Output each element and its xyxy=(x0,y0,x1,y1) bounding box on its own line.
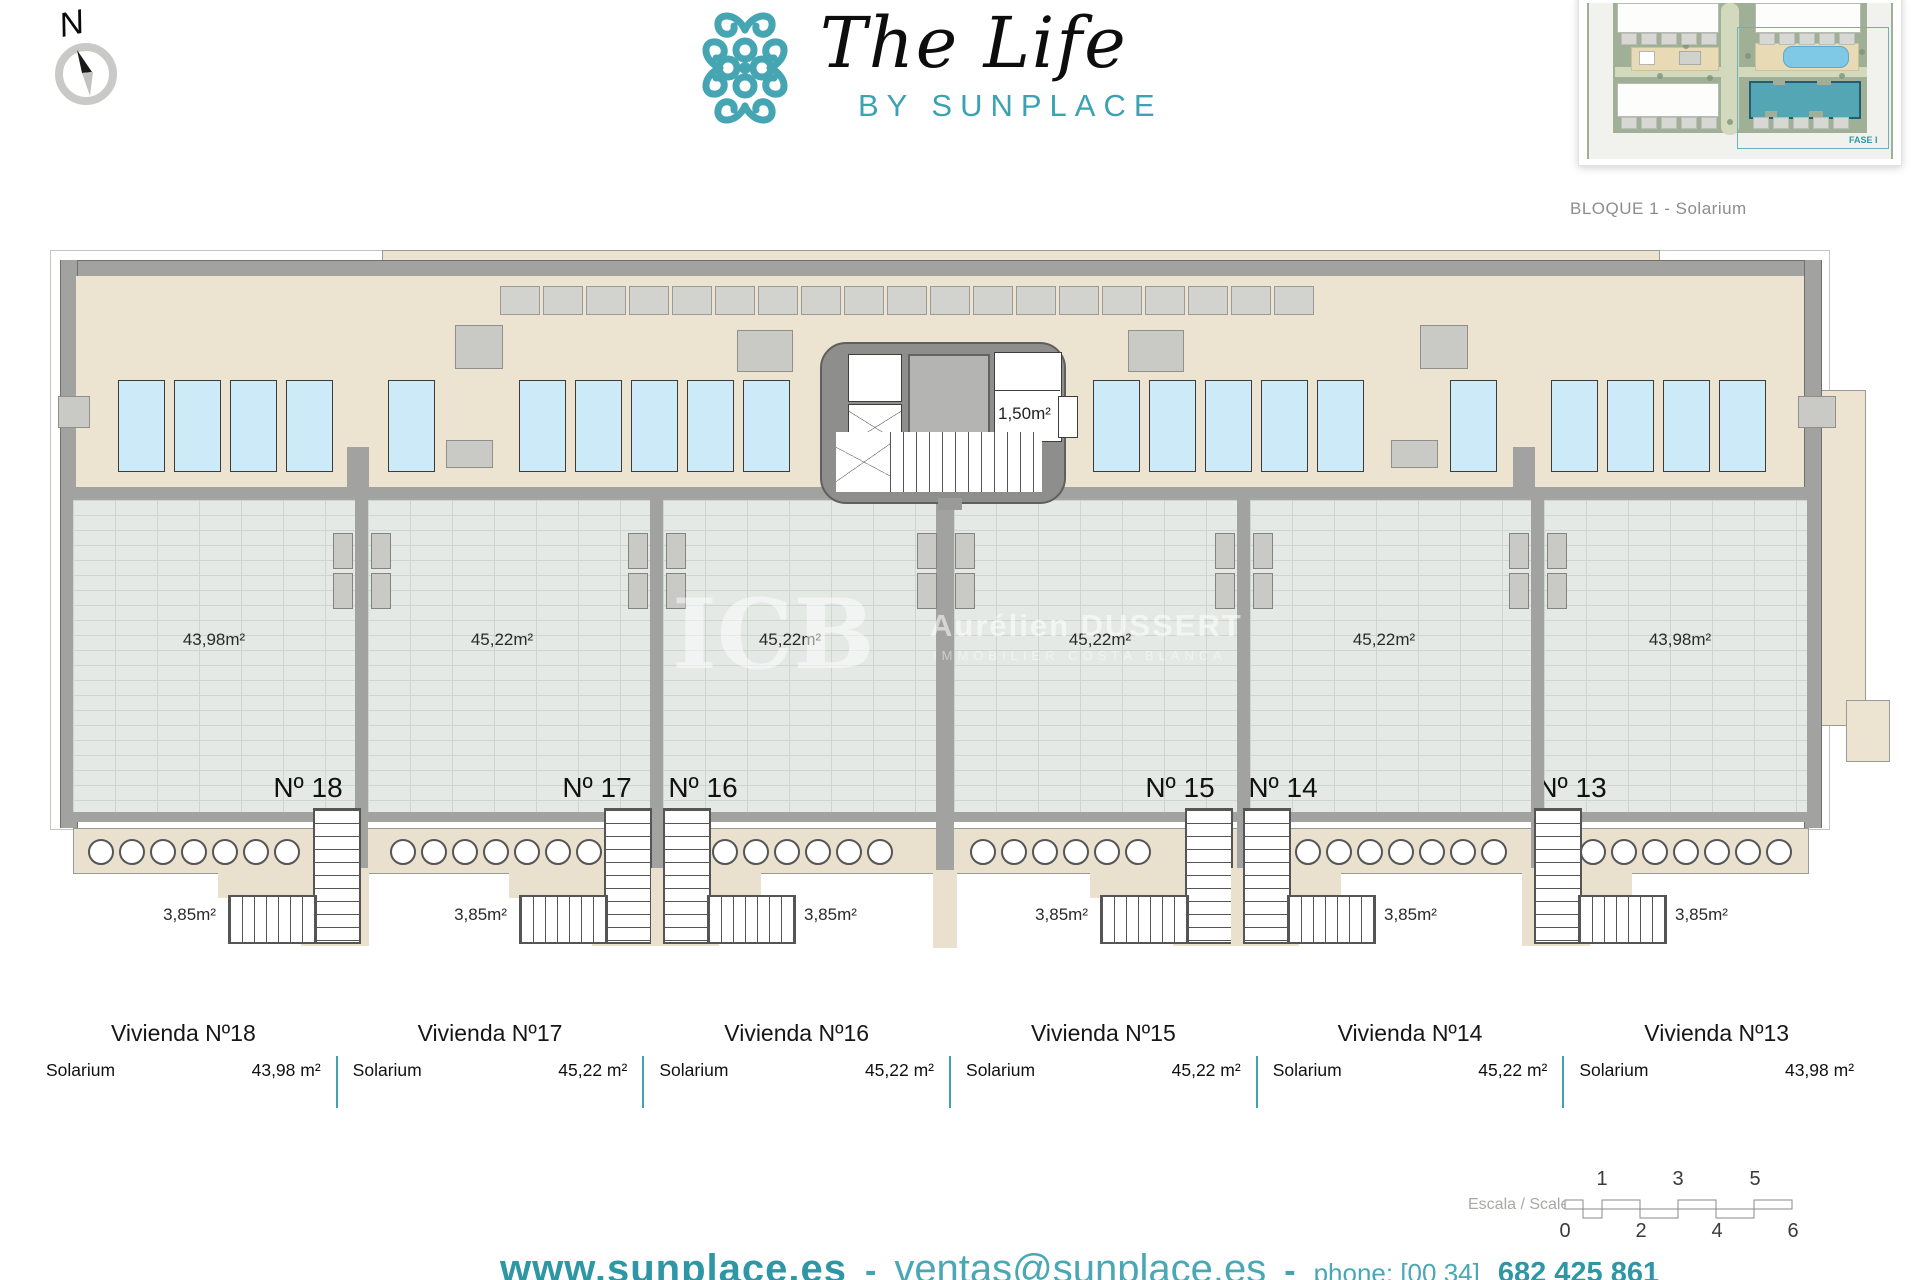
planter-box xyxy=(666,533,686,569)
stair-area-label: 3,85m² xyxy=(136,905,216,925)
stair-shaft xyxy=(1243,808,1291,944)
roof-equipment-box xyxy=(737,330,793,372)
table-title: Vivienda Nº17 xyxy=(353,1020,628,1047)
planter-circle xyxy=(1481,839,1507,865)
stair-core: 1,50m² xyxy=(820,342,1066,504)
stair-shaft xyxy=(663,808,711,944)
terrace-pier xyxy=(1513,447,1535,498)
footer-separator: - xyxy=(865,1252,876,1280)
planter-circle xyxy=(712,839,738,865)
table-column-vivienda-15: Vivienda Nº15Solarium45,22 m² xyxy=(950,1020,1257,1106)
table-row: Solarium45,22 m² xyxy=(1273,1060,1548,1081)
planter-circle xyxy=(1766,839,1792,865)
planter-circle xyxy=(421,839,447,865)
wall-tab xyxy=(58,396,90,428)
planter-box xyxy=(1215,573,1235,609)
roof-vent xyxy=(844,286,884,315)
table-row: Solarium45,22 m² xyxy=(659,1060,934,1081)
planter-circle xyxy=(452,839,478,865)
solar-panel xyxy=(286,380,333,472)
footer-contact: www.sunplace.es - ventas@sunplace.es - p… xyxy=(500,1247,1659,1280)
table-row-value: 45,22 m² xyxy=(558,1060,627,1081)
table-column-vivienda-16: Vivienda Nº16Solarium45,22 m² xyxy=(643,1020,950,1106)
core-door xyxy=(1058,396,1078,438)
planter-circle xyxy=(1419,839,1445,865)
roof-vent xyxy=(1231,286,1271,315)
table-title: Vivienda Nº13 xyxy=(1579,1020,1854,1047)
stair-run xyxy=(1287,895,1376,944)
planter-circle xyxy=(576,839,602,865)
planter-circle xyxy=(1032,839,1058,865)
unit-number-label: Nº 16 xyxy=(655,772,751,804)
roof-annex-right-low xyxy=(1846,700,1890,762)
stair-run xyxy=(519,895,608,944)
footer-email[interactable]: ventas@sunplace.es xyxy=(894,1247,1266,1280)
planter-circle xyxy=(181,839,207,865)
planter-box xyxy=(1547,573,1567,609)
planter-circle xyxy=(483,839,509,865)
solar-panel xyxy=(1551,380,1598,472)
planter-circle xyxy=(1063,839,1089,865)
solar-panel xyxy=(687,380,734,472)
stair-run xyxy=(707,895,796,944)
table-column-vivienda-18: Vivienda Nº18Solarium43,98 m² xyxy=(30,1020,337,1106)
unit-room xyxy=(368,500,650,812)
roof-vent xyxy=(1102,286,1142,315)
planter-circle xyxy=(1326,839,1352,865)
planter-box xyxy=(333,573,353,609)
unit-summary-table: Vivienda Nº18Solarium43,98 m²Vivienda Nº… xyxy=(30,1020,1870,1106)
planter-circle xyxy=(1357,839,1383,865)
scale-bar xyxy=(1564,1192,1796,1222)
central-pier xyxy=(933,870,957,948)
roof-vent xyxy=(586,286,626,315)
table-row-label: Solarium xyxy=(46,1060,115,1081)
unit-room xyxy=(1250,500,1531,812)
roof-equipment-box xyxy=(455,325,503,369)
unit-number-label: Nº 17 xyxy=(549,772,645,804)
table-row: Solarium45,22 m² xyxy=(966,1060,1241,1081)
planter-circle xyxy=(150,839,176,865)
table-row-value: 43,98 m² xyxy=(252,1060,321,1081)
roof-vent xyxy=(715,286,755,315)
unit-divider-central xyxy=(936,497,954,870)
planter-circle xyxy=(1611,839,1637,865)
table-row-value: 45,22 m² xyxy=(865,1060,934,1081)
planter-circle xyxy=(1580,839,1606,865)
table-title: Vivienda Nº16 xyxy=(659,1020,934,1047)
unit-area-label: 45,22m² xyxy=(745,630,835,650)
solar-panel xyxy=(631,380,678,472)
roof-vent xyxy=(500,286,540,315)
planter-circle xyxy=(1295,839,1321,865)
planter-circle xyxy=(1704,839,1730,865)
scale-label: Escala / Scale xyxy=(1468,1196,1569,1214)
roof-equipment-box xyxy=(1391,440,1438,468)
stair-shaft xyxy=(604,808,652,944)
core-connector xyxy=(938,498,962,510)
stair-run xyxy=(1100,895,1189,944)
unit-number-label: Nº 18 xyxy=(260,772,356,804)
stair-shaft xyxy=(1185,808,1233,944)
scale-tick: 2 xyxy=(1635,1220,1646,1243)
footer-website[interactable]: www.sunplace.es xyxy=(500,1247,847,1280)
scale-tick: 6 xyxy=(1787,1220,1798,1243)
planter-circle xyxy=(243,839,269,865)
planter-circle xyxy=(1388,839,1414,865)
solar-panel xyxy=(1149,380,1196,472)
roof-vent xyxy=(1059,286,1099,315)
solar-panel xyxy=(1719,380,1766,472)
planter-box xyxy=(1215,533,1235,569)
planter-circle xyxy=(1450,839,1476,865)
elevator-shaft xyxy=(908,354,990,434)
core-room-small xyxy=(848,354,902,402)
table-row: Solarium43,98 m² xyxy=(1579,1060,1854,1081)
solar-panel xyxy=(118,380,165,472)
core-room-divider xyxy=(994,390,1060,391)
unit-room xyxy=(73,500,355,812)
unit-area-label: 45,22m² xyxy=(1339,630,1429,650)
unit-area-label: 43,98m² xyxy=(169,630,259,650)
planter-box xyxy=(628,573,648,609)
planter-circle xyxy=(1125,839,1151,865)
planter-circle xyxy=(970,839,996,865)
unit-area-label: 45,22m² xyxy=(457,630,547,650)
solar-panel xyxy=(1450,380,1497,472)
roof-vent xyxy=(1274,286,1314,315)
planter-box xyxy=(1509,533,1529,569)
planter-box xyxy=(371,573,391,609)
core-room-right xyxy=(994,352,1062,442)
floorplan-sheet: N The Life BY SUNPLACE xyxy=(0,0,1920,1280)
solar-panel xyxy=(174,380,221,472)
planter-box xyxy=(955,533,975,569)
scale-tick: 4 xyxy=(1711,1220,1722,1243)
planter-circle xyxy=(119,839,145,865)
stair-area-label: 3,85m² xyxy=(427,905,507,925)
table-row-label: Solarium xyxy=(966,1060,1035,1081)
planter-box xyxy=(628,533,648,569)
planter-circle xyxy=(743,839,769,865)
roof-vent xyxy=(973,286,1013,315)
planter-circle xyxy=(805,839,831,865)
table-row: Solarium45,22 m² xyxy=(353,1060,628,1081)
planter-box xyxy=(371,533,391,569)
solar-panel xyxy=(388,380,435,472)
unit-room xyxy=(663,500,936,812)
unit-room xyxy=(1544,500,1807,812)
planter-box xyxy=(1253,573,1273,609)
roof-annex-right xyxy=(1820,390,1866,726)
roof-equipment-box xyxy=(1420,325,1468,369)
planter-circle xyxy=(1735,839,1761,865)
unit-room xyxy=(954,500,1237,812)
stair-area-label: 3,85m² xyxy=(1008,905,1088,925)
roof-vent xyxy=(629,286,669,315)
scale-tick: 3 xyxy=(1672,1168,1683,1191)
footer-phone-number: 682 425 861 xyxy=(1498,1257,1659,1280)
solar-panel xyxy=(1093,380,1140,472)
planter-box xyxy=(1547,533,1567,569)
solar-panel xyxy=(519,380,566,472)
unit-area-label: 43,98m² xyxy=(1635,630,1725,650)
footer-separator: - xyxy=(1284,1252,1295,1280)
planter-box xyxy=(917,533,937,569)
solar-panel xyxy=(743,380,790,472)
planter-box xyxy=(1253,533,1273,569)
stair-run xyxy=(1578,895,1667,944)
planter-box xyxy=(917,573,937,609)
planter-box xyxy=(955,573,975,609)
planter-circle xyxy=(1642,839,1668,865)
stair-area-label: 3,85m² xyxy=(804,905,884,925)
planter-circle xyxy=(1001,839,1027,865)
stair-winders xyxy=(836,432,892,492)
solar-panel xyxy=(575,380,622,472)
solar-panel xyxy=(1261,380,1308,472)
roof-vent xyxy=(887,286,927,315)
scale-tick: 0 xyxy=(1559,1220,1570,1243)
roof-vent xyxy=(1145,286,1185,315)
roof-vent xyxy=(1188,286,1228,315)
stair-shaft xyxy=(1534,808,1582,944)
terrace-pier xyxy=(347,447,369,498)
table-row-value: 45,22 m² xyxy=(1172,1060,1241,1081)
table-column-vivienda-17: Vivienda Nº17Solarium45,22 m² xyxy=(337,1020,644,1106)
stair-area-label: 3,85m² xyxy=(1675,905,1755,925)
stair-shaft xyxy=(313,808,361,944)
footer-phone-label: phone: [00 34] xyxy=(1314,1258,1480,1280)
table-row-label: Solarium xyxy=(1273,1060,1342,1081)
table-row-value: 45,22 m² xyxy=(1478,1060,1547,1081)
planter-box xyxy=(1509,573,1529,609)
planter-circle xyxy=(774,839,800,865)
planter-circle xyxy=(88,839,114,865)
planter-circle xyxy=(514,839,540,865)
table-row-label: Solarium xyxy=(353,1060,422,1081)
scale-tick: 1 xyxy=(1596,1168,1607,1191)
stair-flight xyxy=(890,432,1042,492)
core-area-label: 1,50m² xyxy=(998,404,1051,424)
table-row-value: 43,98 m² xyxy=(1785,1060,1854,1081)
planter-circle xyxy=(836,839,862,865)
floorplan: 43,98m²Nº 1845,22m²Nº 1745,22m²Nº 1645,2… xyxy=(0,0,1920,1000)
roof-vent xyxy=(543,286,583,315)
table-title: Vivienda Nº14 xyxy=(1273,1020,1548,1047)
solar-panel xyxy=(1663,380,1710,472)
roof-vent xyxy=(930,286,970,315)
table-column-vivienda-13: Vivienda Nº13Solarium43,98 m² xyxy=(1563,1020,1870,1106)
planter-circle xyxy=(274,839,300,865)
planter-circle xyxy=(867,839,893,865)
scale-tick: 5 xyxy=(1749,1168,1760,1191)
roof-vent xyxy=(758,286,798,315)
roof-vent xyxy=(1016,286,1056,315)
roof-equipment-box xyxy=(446,440,493,468)
solar-panel xyxy=(1317,380,1364,472)
table-title: Vivienda Nº18 xyxy=(46,1020,321,1047)
stair-area-label: 3,85m² xyxy=(1384,905,1464,925)
table-row: Solarium43,98 m² xyxy=(46,1060,321,1081)
planter-circle xyxy=(545,839,571,865)
unit-number-label: Nº 15 xyxy=(1132,772,1228,804)
roof-equipment-box xyxy=(1128,330,1184,372)
solar-panel xyxy=(230,380,277,472)
unit-area-label: 45,22m² xyxy=(1055,630,1145,650)
planter-circle xyxy=(390,839,416,865)
planter-box xyxy=(666,573,686,609)
roof-vent xyxy=(801,286,841,315)
wall-tab xyxy=(1798,396,1836,428)
table-title: Vivienda Nº15 xyxy=(966,1020,1241,1047)
table-column-vivienda-14: Vivienda Nº14Solarium45,22 m² xyxy=(1257,1020,1564,1106)
table-row-label: Solarium xyxy=(1579,1060,1648,1081)
roof-vent xyxy=(672,286,712,315)
solar-panel xyxy=(1205,380,1252,472)
planter-circle xyxy=(1094,839,1120,865)
table-row-label: Solarium xyxy=(659,1060,728,1081)
planter-box xyxy=(333,533,353,569)
stair-run xyxy=(228,895,317,944)
planter-circle xyxy=(1673,839,1699,865)
planter-circle xyxy=(212,839,238,865)
solar-panel xyxy=(1607,380,1654,472)
